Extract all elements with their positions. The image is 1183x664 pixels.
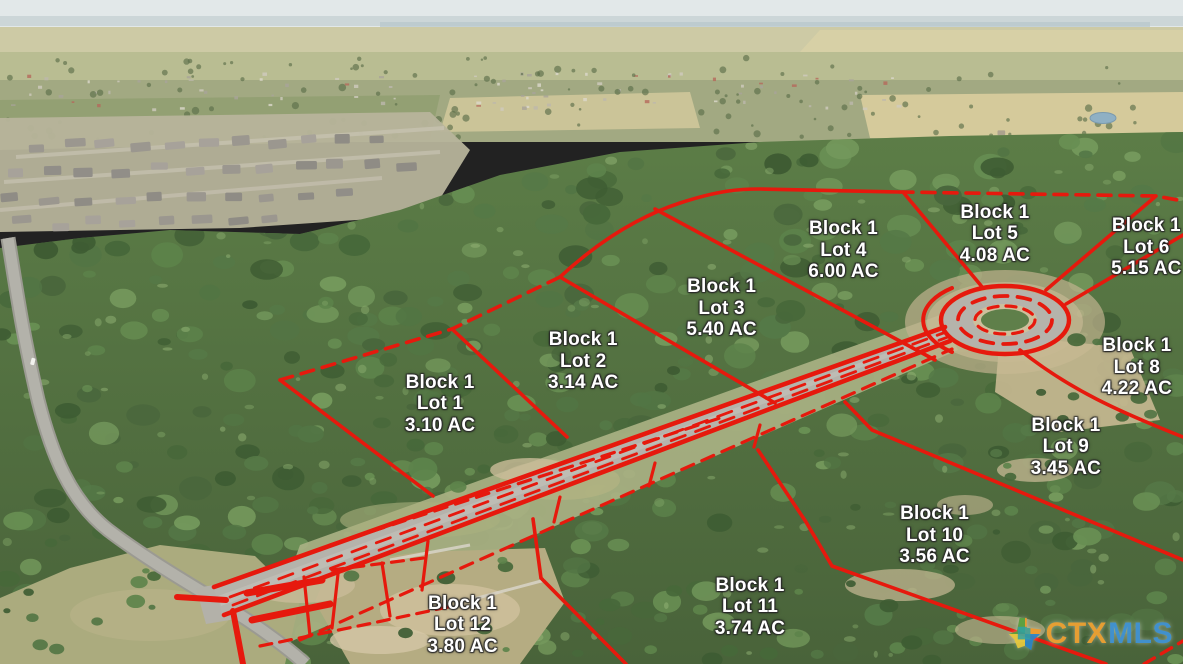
- aerial-photo: [0, 0, 1183, 664]
- ctxmls-logo-icon: [1007, 616, 1043, 652]
- ctxmls-watermark: CTXMLS: [1007, 616, 1173, 652]
- watermark-ctx-text: CTX: [1046, 617, 1108, 651]
- pond: [1090, 113, 1116, 124]
- aerial-lot-map: Block 1Lot 13.10 ACBlock 1Lot 23.14 ACBl…: [0, 0, 1183, 664]
- watermark-mls-text: MLS: [1108, 617, 1173, 651]
